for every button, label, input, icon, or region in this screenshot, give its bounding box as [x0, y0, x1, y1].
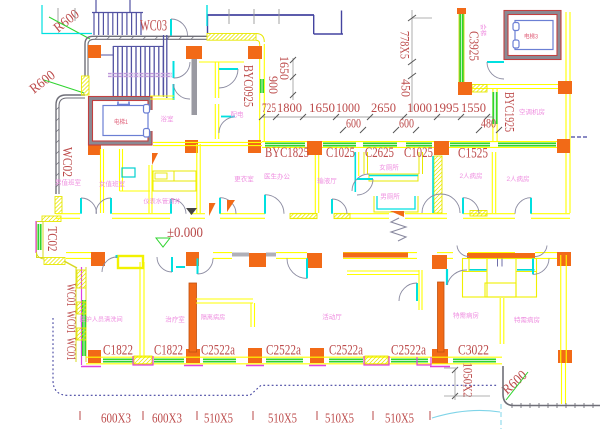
- svg-text:WC01: WC01: [64, 338, 78, 361]
- svg-text:女厕所: 女厕所: [379, 163, 399, 172]
- svg-text:WC03: WC03: [140, 18, 167, 35]
- svg-text:医护人员清洗间: 医护人员清洗间: [79, 316, 122, 324]
- svg-text:C2625: C2625: [365, 145, 394, 161]
- svg-text:治疗室: 治疗室: [165, 315, 185, 324]
- svg-text:1650: 1650: [309, 100, 335, 115]
- svg-text:900: 900: [266, 76, 281, 94]
- svg-text:C1025: C1025: [404, 145, 433, 161]
- svg-text:C3925: C3925: [467, 31, 482, 61]
- svg-text:C1025: C1025: [326, 145, 355, 161]
- svg-text:WC01: WC01: [64, 284, 78, 307]
- svg-text:电梯1: 电梯1: [114, 118, 129, 126]
- svg-text:BYC1925: BYC1925: [502, 92, 517, 132]
- svg-text:仪表水管通井: 仪表水管通井: [143, 198, 180, 206]
- svg-text:510X5: 510X5: [385, 411, 414, 426]
- svg-text:C1525: C1525: [458, 146, 488, 162]
- svg-text:WC02: WC02: [60, 147, 75, 177]
- svg-text:男厕所: 男厕所: [380, 192, 400, 201]
- svg-text:725: 725: [262, 100, 276, 115]
- svg-text:1000: 1000: [336, 100, 360, 115]
- svg-text:±0.000: ±0.000: [167, 225, 203, 241]
- svg-text:配电: 配电: [231, 110, 245, 119]
- svg-text:C2522a: C2522a: [266, 343, 301, 359]
- svg-text:BYC1825: BYC1825: [265, 145, 309, 161]
- svg-text:C1822: C1822: [103, 343, 133, 359]
- svg-text:778X5: 778X5: [398, 31, 413, 59]
- svg-text:600: 600: [399, 116, 414, 131]
- svg-text:1550: 1550: [461, 100, 486, 115]
- svg-text:隔离病房: 隔离病房: [201, 314, 226, 322]
- svg-text:1000: 1000: [407, 100, 432, 115]
- svg-text:C2522a: C2522a: [329, 343, 363, 359]
- svg-text:510X5: 510X5: [268, 411, 297, 426]
- svg-text:510X5: 510X5: [204, 411, 233, 426]
- svg-text:女值班室: 女值班室: [99, 179, 126, 188]
- svg-text:更衣室: 更衣室: [234, 174, 254, 183]
- svg-text:活动厅: 活动厅: [322, 312, 342, 321]
- svg-text:C2522a: C2522a: [201, 343, 235, 359]
- svg-text:600X3: 600X3: [152, 411, 182, 426]
- svg-text:特需病房: 特需病房: [453, 311, 479, 320]
- svg-text:600X3: 600X3: [101, 411, 131, 426]
- svg-text:450: 450: [399, 79, 414, 97]
- svg-text:BYC0925: BYC0925: [241, 65, 256, 107]
- svg-text:1800: 1800: [277, 100, 302, 115]
- svg-text:2人病房: 2人病房: [506, 174, 529, 183]
- svg-text:C1822: C1822: [154, 343, 183, 359]
- svg-text:WC01: WC01: [64, 311, 78, 334]
- svg-text:空调机房: 空调机房: [519, 107, 545, 116]
- svg-text:480: 480: [481, 116, 496, 131]
- svg-text:1050X2: 1050X2: [461, 363, 476, 398]
- svg-text:2650: 2650: [371, 100, 396, 115]
- svg-text:输液厅: 输液厅: [317, 176, 337, 185]
- svg-text:C3022: C3022: [458, 343, 489, 359]
- svg-text:特需病房: 特需病房: [514, 315, 540, 324]
- svg-text:600: 600: [346, 116, 361, 131]
- svg-text:510X5: 510X5: [325, 411, 354, 426]
- svg-text:TC02: TC02: [45, 227, 60, 252]
- svg-text:男值班室: 男值班室: [55, 178, 82, 187]
- svg-text:C2522a: C2522a: [391, 343, 426, 359]
- svg-text:1995: 1995: [433, 100, 459, 115]
- svg-text:医生办公: 医生办公: [264, 172, 291, 181]
- svg-text:2人病房: 2人病房: [459, 171, 482, 180]
- svg-text:电梯3: 电梯3: [524, 33, 539, 41]
- svg-text:浴室: 浴室: [161, 114, 175, 123]
